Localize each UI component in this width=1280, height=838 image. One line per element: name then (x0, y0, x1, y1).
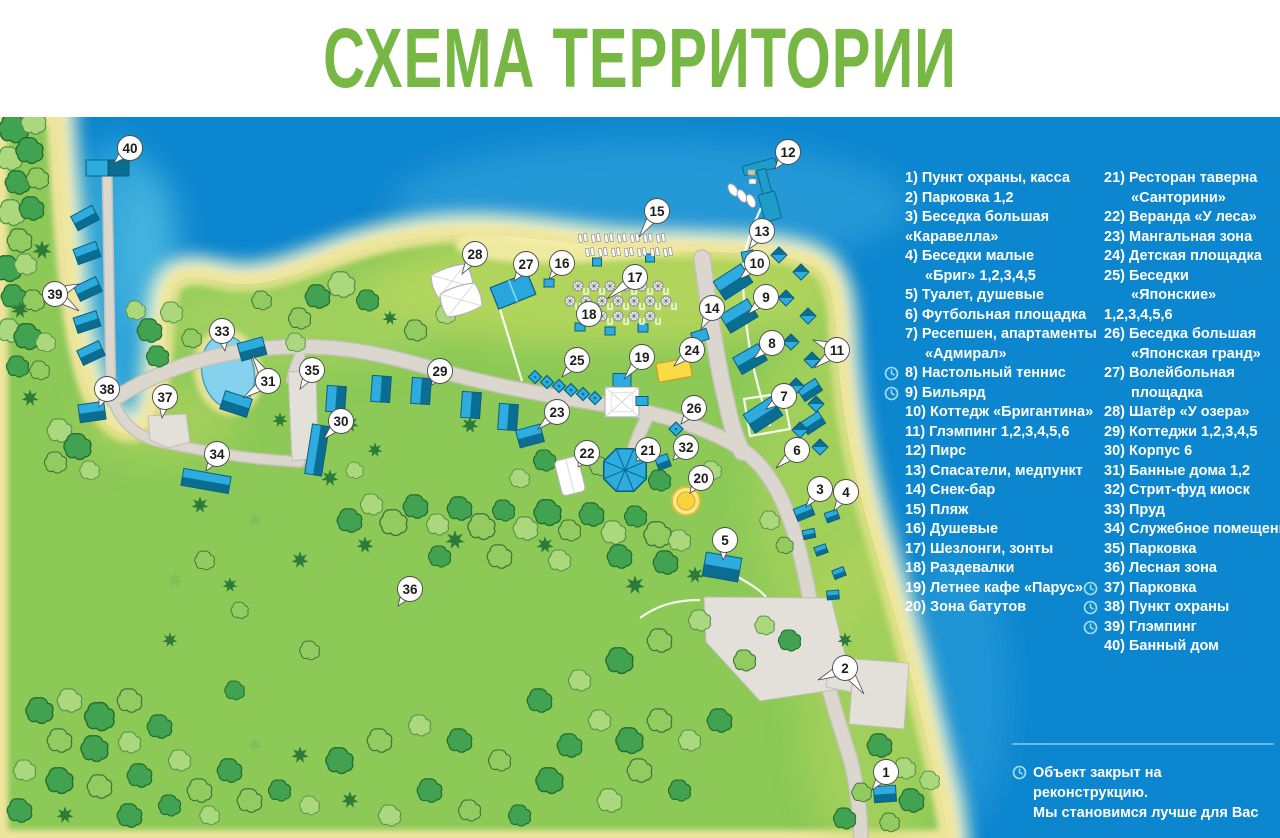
legend-item-text: 5) Туалет, душевые (905, 286, 1105, 306)
legend-item-text: 17) Шезлонги, зонты (905, 540, 1105, 560)
legend-item-text: 34) Служебное помещение (1104, 520, 1280, 540)
svg-text:30: 30 (333, 414, 348, 429)
svg-text:13: 13 (754, 224, 770, 239)
map-object-sqL (638, 324, 648, 332)
legend-item-25: 25) Беседки«Японские»1,2,3,4,5,6 (1104, 267, 1280, 326)
svg-text:29: 29 (432, 364, 447, 379)
legend-item-6: 6) Футбольная площадка (905, 306, 1105, 326)
legend-item-22: 22) Веранда «У леса» (1104, 208, 1280, 228)
map-object-house (802, 528, 816, 539)
legend-item-text: 35) Парковка (1104, 540, 1280, 560)
legend-item-4: 4) Беседки малые«Бриг» 1,2,3,4,5 (905, 247, 1105, 286)
legend-item-text: 23) Мангальная зона (1104, 228, 1280, 248)
legend-item-text-cont: «Японская гранд» (1104, 345, 1280, 365)
svg-text:24: 24 (684, 343, 700, 358)
map-object-circ (672, 487, 700, 515)
svg-text:17: 17 (627, 270, 642, 285)
svg-text:27: 27 (518, 257, 533, 272)
legend-item-text: 38) Пункт охраны (1104, 598, 1280, 618)
legend-item-text: 16) Душевые (905, 520, 1105, 540)
legend-item-35: 35) Парковка (1104, 540, 1280, 560)
svg-text:33: 33 (214, 324, 230, 339)
note-text: Объект закрыт на реконструкцию.Мы станов… (1033, 763, 1274, 823)
marker-32: 32 (673, 435, 699, 461)
legend-item-5: 5) Туалет, душевые (905, 286, 1105, 306)
legend-item-9: 9) Бильярд (905, 384, 1105, 404)
map-object-sqL (544, 279, 554, 287)
legend-item-text: 11) Глэмпинг 1,2,3,4,5,6 (905, 423, 1105, 443)
legend-item-text: 12) Пирс (905, 442, 1105, 462)
legend-item-text-cont: «Санторини» (1104, 189, 1280, 209)
map-object-wpav (605, 387, 639, 417)
svg-text:21: 21 (640, 443, 656, 458)
svg-text:11: 11 (830, 343, 845, 358)
clock-icon (1012, 765, 1027, 780)
svg-text:15: 15 (649, 204, 665, 219)
parking-2b (849, 659, 909, 729)
legend-item-text-cont: «Адмирал» (905, 345, 1105, 365)
note-divider (1012, 743, 1274, 745)
map-object-sqL (593, 258, 602, 266)
legend-item-text: 28) Шатёр «У озера» (1104, 403, 1280, 423)
svg-text:10: 10 (749, 256, 764, 271)
legend-item-12: 12) Пирс (905, 442, 1105, 462)
svg-text:26: 26 (686, 401, 702, 416)
svg-text:28: 28 (467, 247, 483, 262)
svg-text:19: 19 (634, 350, 649, 365)
legend-item-text: 30) Корпус 6 (1104, 442, 1280, 462)
legend-item-text: 26) Беседка большая (1104, 325, 1280, 345)
legend-item-text: 3) Беседка большая (905, 208, 1105, 228)
svg-text:2: 2 (841, 661, 849, 676)
svg-text:18: 18 (581, 307, 597, 322)
legend-item-text: 4) Беседки малые (905, 247, 1105, 267)
legend-item-text: 33) Пруд (1104, 501, 1280, 521)
clock-icon (884, 386, 899, 401)
map-object-vhouse (371, 375, 392, 402)
marker-18: 18 (577, 302, 602, 327)
svg-text:23: 23 (549, 405, 565, 420)
legend-item-16: 16) Душевые (905, 520, 1105, 540)
legend-item-text-cont: «Японские» (1104, 286, 1280, 306)
legend-item-31: 31) Банные дома 1,2 (1104, 462, 1280, 482)
svg-text:5: 5 (721, 533, 729, 548)
legend-column-1: 1) Пункт охраны, касса2) Парковка 1,23) … (905, 169, 1105, 618)
svg-text:36: 36 (402, 582, 418, 597)
legend-item-30: 30) Корпус 6 (1104, 442, 1280, 462)
legend-item-11: 11) Глэмпинг 1,2,3,4,5,6 (905, 423, 1105, 443)
legend-item-text: 9) Бильярд (905, 384, 1105, 404)
legend-item-text: 18) Раздевалки (905, 559, 1105, 579)
legend-item-text: 1) Пункт охраны, касса (905, 169, 1105, 189)
legend-item-23: 23) Мангальная зона (1104, 228, 1280, 248)
clock-icon (884, 366, 899, 381)
clock-icon (1083, 600, 1098, 615)
svg-text:14: 14 (704, 301, 720, 316)
svg-text:4: 4 (842, 485, 850, 500)
legend-item-text: 37) Парковка (1104, 579, 1280, 599)
title-band: СХЕМА ТЕРРИТОРИИ (0, 0, 1280, 117)
legend-item-text: 40) Банный дом (1104, 637, 1280, 657)
svg-text:31: 31 (260, 374, 276, 389)
legend-item-text: 27) Волейбольная (1104, 364, 1280, 384)
legend-item-34: 34) Служебное помещение (1104, 520, 1280, 540)
svg-text:16: 16 (554, 256, 570, 271)
legend-item-7: 7) Ресепшен, апартаменты«Адмирал» (905, 325, 1105, 364)
legend-item-text: 14) Снек-бар (905, 481, 1105, 501)
tree (21, 117, 46, 134)
svg-text:12: 12 (780, 145, 795, 160)
page-title: СХЕМА ТЕРРИТОРИИ (323, 10, 957, 107)
svg-text:32: 32 (678, 440, 693, 455)
map-object-sqL (636, 397, 648, 406)
legend-item-20: 20) Зона батутов (905, 598, 1105, 618)
legend-item-13: 13) Спасатели, медпункт (905, 462, 1105, 482)
map-object-sqD (109, 160, 129, 176)
svg-text:39: 39 (47, 287, 62, 302)
svg-text:40: 40 (122, 141, 137, 156)
legend-item-text: 15) Пляж (905, 501, 1105, 521)
legend-item-18: 18) Раздевалки (905, 559, 1105, 579)
legend-item-text: 24) Детская площадка (1104, 247, 1280, 267)
svg-text:35: 35 (304, 363, 320, 378)
svg-text:9: 9 (762, 290, 770, 305)
legend-item-text: 32) Стрит-фуд киоск (1104, 481, 1280, 501)
legend-item-text: 19) Летнее кафе «Парус» (905, 579, 1105, 599)
note-line: Объект закрыт на реконструкцию. (1033, 763, 1274, 803)
svg-text:7: 7 (780, 389, 788, 404)
legend-item-text-cont: «Каравелла» (905, 228, 1105, 248)
legend-item-10: 10) Коттедж «Бригантина» (905, 403, 1105, 423)
legend-item-33: 33) Пруд (1104, 501, 1280, 521)
svg-text:20: 20 (693, 471, 708, 486)
legend-item-text: 6) Футбольная площадка (905, 306, 1105, 326)
legend-item-text: 7) Ресепшен, апартаменты (905, 325, 1105, 345)
map-object-house (873, 785, 896, 802)
legend-item-24: 24) Детская площадка (1104, 247, 1280, 267)
svg-text:6: 6 (793, 443, 801, 458)
legend-item-text-cont: «Бриг» 1,2,3,4,5 (905, 267, 1105, 287)
map-object-vhouse (411, 377, 432, 404)
svg-text:3: 3 (816, 482, 824, 497)
legend-item-text: 36) Лесная зона (1104, 559, 1280, 579)
legend-item-text: 39) Глэмпинг (1104, 618, 1280, 638)
legend-item-text: 8) Настольный теннис (905, 364, 1105, 384)
legend-item-3: 3) Беседка большая«Каравелла» (905, 208, 1105, 247)
clock-icon (1083, 620, 1098, 635)
legend-note: Объект закрыт на реконструкцию.Мы станов… (1012, 743, 1274, 823)
legend-item-8: 8) Настольный теннис (905, 364, 1105, 384)
legend-item-32: 32) Стрит-фуд киоск (1104, 481, 1280, 501)
legend-item-29: 29) Коттеджи 1,2,3,4,5 (1104, 423, 1280, 443)
note-line: Мы становимся лучше для Вас (1033, 803, 1274, 823)
svg-text:34: 34 (209, 447, 225, 462)
svg-text:1: 1 (882, 765, 890, 780)
legend-item-1: 1) Пункт охраны, касса (905, 169, 1105, 189)
svg-text:8: 8 (768, 336, 776, 351)
note-row: Объект закрыт на реконструкцию.Мы станов… (1012, 763, 1274, 823)
legend-item-37: 37) Парковка (1104, 579, 1280, 599)
legend-item-text: 25) Беседки (1104, 267, 1280, 287)
svg-text:37: 37 (157, 390, 172, 405)
legend-item-27: 27) Волейбольнаяплощадка (1104, 364, 1280, 403)
legend-item-15: 15) Пляж (905, 501, 1105, 521)
legend-item-text: 22) Веранда «У леса» (1104, 208, 1280, 228)
legend-item-38: 38) Пункт охраны (1104, 598, 1280, 618)
clock-icon (1083, 581, 1098, 596)
legend-item-2: 2) Парковка 1,2 (905, 189, 1105, 209)
svg-text:25: 25 (569, 353, 585, 368)
legend-item-text: 13) Спасатели, медпункт (905, 462, 1105, 482)
legend-item-text-cont: площадка (1104, 384, 1280, 404)
legend-item-14: 14) Снек-бар (905, 481, 1105, 501)
legend-item-text: 20) Зона батутов (905, 598, 1105, 618)
map-object-house (827, 590, 840, 600)
marker-21: 21 (636, 438, 661, 463)
legend-item-19: 19) Летнее кафе «Парус» (905, 579, 1105, 599)
legend-item-28: 28) Шатёр «У озера» (1104, 403, 1280, 423)
svg-text:22: 22 (579, 446, 594, 461)
legend-item-40: 40) Банный дом (1104, 637, 1280, 657)
legend-item-21: 21) Ресторан таверна«Санторини» (1104, 169, 1280, 208)
territory-scheme-poster: СХЕМА ТЕРРИТОРИИ (0, 0, 1280, 838)
legend-item-text: 31) Банные дома 1,2 (1104, 462, 1280, 482)
legend-item-39: 39) Глэмпинг (1104, 618, 1280, 638)
legend-item-text-cont: 1,2,3,4,5,6 (1104, 306, 1280, 326)
legend-item-text: 29) Коттеджи 1,2,3,4,5 (1104, 423, 1280, 443)
map-object-vhouse (461, 391, 482, 418)
legend-item-17: 17) Шезлонги, зонты (905, 540, 1105, 560)
legend-item-text: 2) Парковка 1,2 (905, 189, 1105, 209)
legend-item-text: 21) Ресторан таверна (1104, 169, 1280, 189)
legend-item-26: 26) Беседка большая«Японская гранд» (1104, 325, 1280, 364)
map-object-sqL (86, 160, 108, 176)
legend-item-text: 10) Коттедж «Бригантина» (905, 403, 1105, 423)
map-object-sqL (605, 327, 615, 335)
svg-text:38: 38 (99, 382, 115, 397)
legend-item-36: 36) Лесная зона (1104, 559, 1280, 579)
legend-column-2: 21) Ресторан таверна«Санторини»22) Веран… (1104, 169, 1280, 657)
map-object-vhouse (498, 403, 519, 430)
